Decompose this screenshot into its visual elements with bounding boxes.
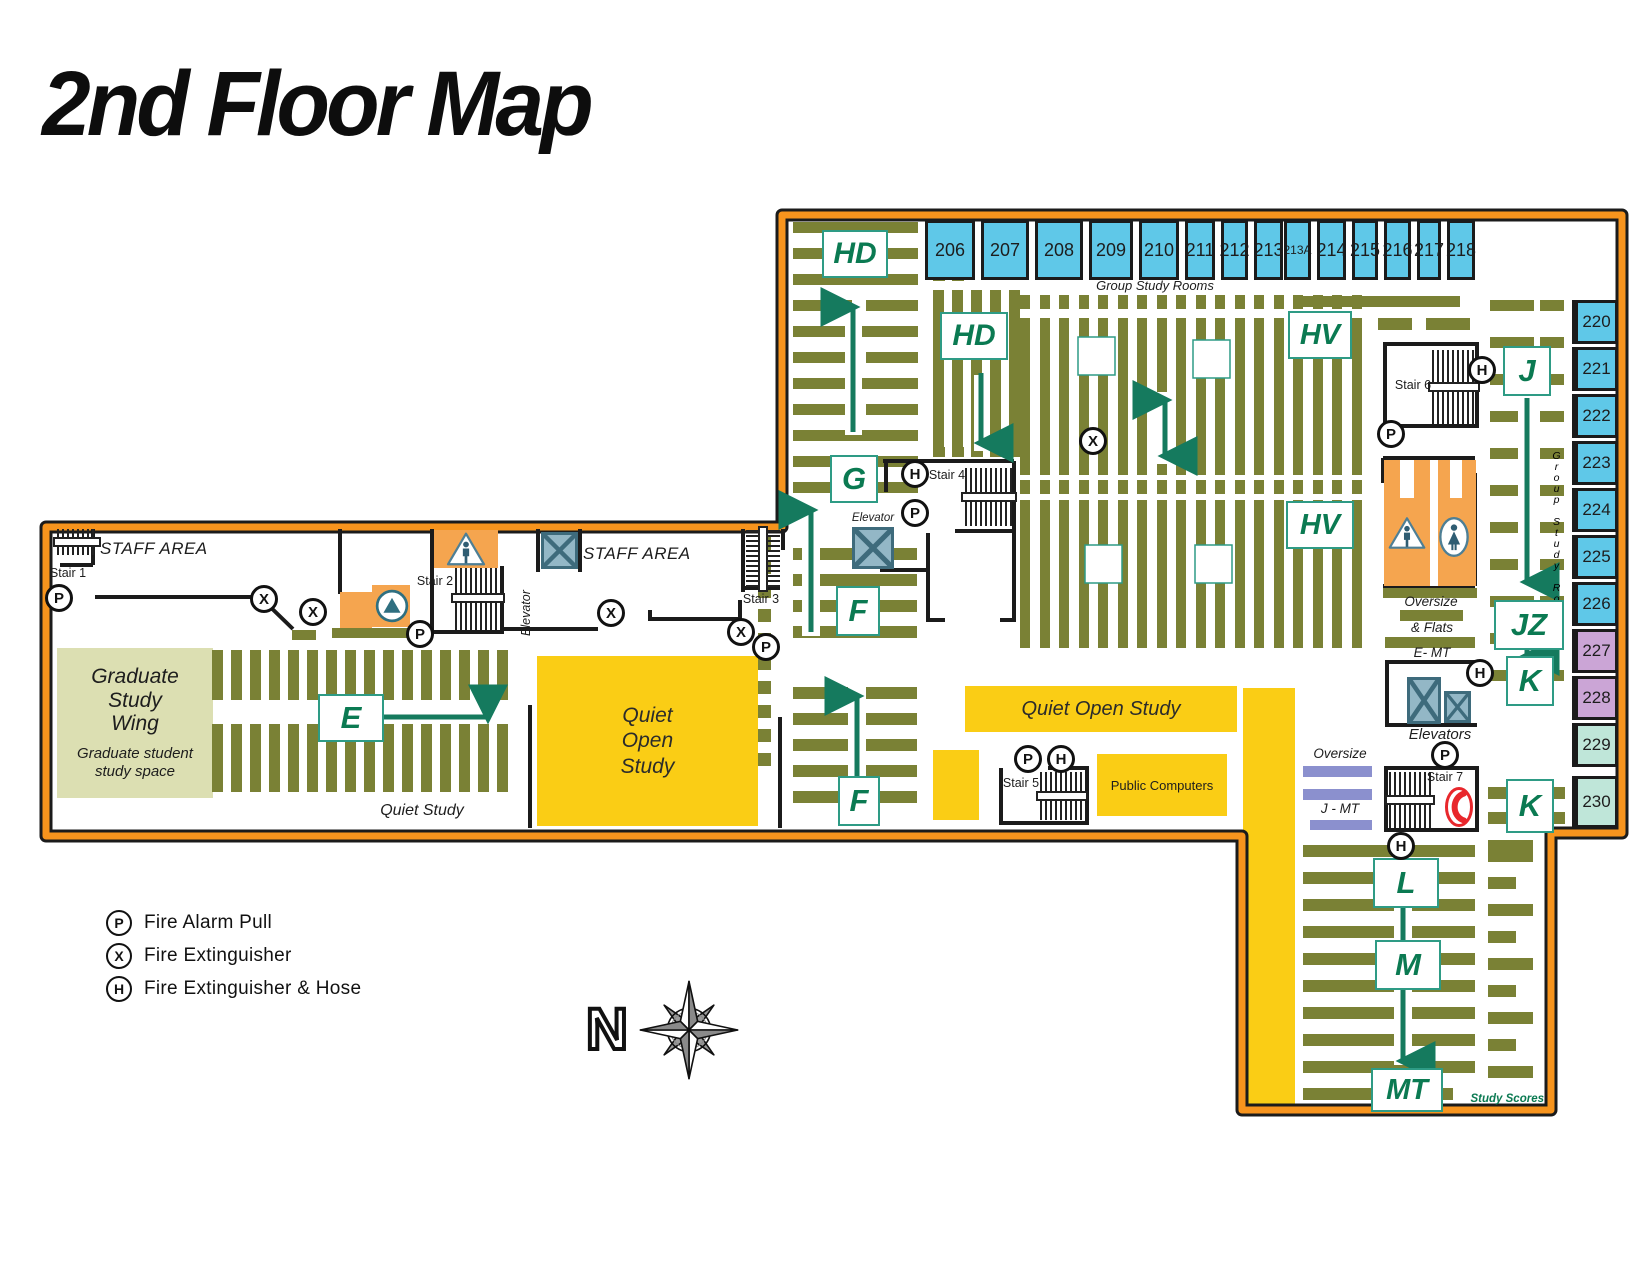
mens-restroom-icon (1388, 515, 1426, 551)
oversize-1-label: Oversize (1388, 594, 1474, 609)
book-stacks (212, 222, 1565, 1100)
legend-item-fire-hose: H Fire Extinguisher & Hose (106, 976, 361, 1002)
fire-extinguisher-hose-icon: H (901, 460, 929, 488)
elevator-icon-right-2 (1444, 691, 1471, 723)
group-study-room-228: 228 (1572, 676, 1618, 720)
legend-label: Fire Extinguisher & Hose (144, 978, 361, 1000)
fire-alarm-pull-icon: P (406, 620, 434, 648)
womens-restroom-icon (1438, 516, 1470, 558)
fire-alarm-pull-icon: P (1377, 420, 1405, 448)
fire-alarm-pull-icon: P (752, 633, 780, 661)
refuge-area-box (340, 592, 372, 628)
call-label-k-2: K (1506, 779, 1554, 833)
elevator-icon-wing (541, 532, 578, 569)
phone-icon (1444, 786, 1474, 828)
assistance-person-icon (446, 531, 486, 567)
fire-extinguisher-hose-icon: H (1468, 356, 1496, 384)
group-study-room-213: 213 (1254, 220, 1283, 280)
legend-item-fire-alarm: P Fire Alarm Pull (106, 910, 361, 936)
group-study-room-229: 229 (1572, 723, 1618, 767)
staff-area-1-label: STAFF AREA (100, 539, 208, 559)
group-study-room-221: 221 (1572, 347, 1618, 391)
fire-extinguisher-hose-icon: H (106, 976, 132, 1002)
call-label-hd-2: HD (940, 312, 1008, 360)
fire-extinguisher-hose-icon: H (1466, 659, 1494, 687)
call-label-hv-1: HV (1288, 311, 1352, 359)
oversize-2-label: Oversize (1300, 746, 1380, 761)
restroom-entry-left (1400, 460, 1414, 498)
compass-rose-icon (634, 976, 744, 1084)
elevator-icon-upper (852, 527, 894, 569)
fire-alarm-pull-icon: P (1014, 745, 1042, 773)
e-mt-range-label: E- MT (1392, 645, 1472, 660)
stair-7-label: Stair 7 (1426, 770, 1464, 784)
group-study-rooms-caption-top: Group Study Rooms (1040, 278, 1270, 293)
fire-extinguisher-icon: X (299, 598, 327, 626)
group-study-room-211: 211 (1185, 220, 1215, 280)
group-study-room-217: 217 (1417, 220, 1441, 280)
flats-label: & Flats (1392, 620, 1472, 635)
group-study-room-223: 223 (1572, 441, 1618, 485)
group-study-room-210: 210 (1139, 220, 1179, 280)
group-study-room-225: 225 (1572, 535, 1618, 579)
stair-1-label: Stair 1 (40, 566, 96, 580)
call-label-l: L (1373, 858, 1439, 908)
elevator-wing-label: Elevator (519, 562, 533, 636)
stair-3-label: Stair 3 (742, 592, 780, 606)
group-study-room-218: 218 (1447, 220, 1475, 280)
j-mt-range-label: J - MT (1300, 801, 1380, 816)
stair-2-label: Stair 2 (408, 574, 462, 588)
quiet-study-label: Quiet Study (362, 802, 482, 820)
map-legend: P Fire Alarm Pull X Fire Extinguisher H … (106, 910, 361, 1009)
group-study-room-207: 207 (981, 220, 1029, 280)
fire-alarm-pull-icon: P (901, 499, 929, 527)
call-label-f-1: F (836, 586, 880, 636)
call-label-mt: MT (1371, 1068, 1443, 1112)
call-label-hd-1: HD (822, 230, 888, 278)
group-study-room-227: 227 (1572, 629, 1618, 673)
fire-alarm-pull-icon: P (106, 910, 132, 936)
study-scores-label: Study Scores (1448, 1093, 1544, 1105)
stair-5-label: Stair 5 (1002, 776, 1040, 790)
stair-6-label: Stair 6 (1394, 378, 1432, 392)
group-study-room-222: 222 (1572, 394, 1618, 438)
legend-label: Fire Alarm Pull (144, 912, 272, 934)
group-study-room-216: 216 (1384, 220, 1411, 280)
group-study-room-226: 226 (1572, 582, 1618, 626)
group-study-room-230: 230 (1572, 776, 1618, 828)
group-study-room-213A: 213A (1284, 220, 1311, 280)
call-label-g: G (830, 455, 878, 503)
restroom-entry-right (1450, 460, 1462, 498)
fire-extinguisher-hose-icon: H (1047, 745, 1075, 773)
legend-label: Fire Extinguisher (144, 945, 292, 967)
call-label-f-2: F (838, 776, 880, 826)
group-study-room-206: 206 (925, 220, 975, 280)
fire-extinguisher-icon: X (727, 618, 755, 646)
group-study-room-214: 214 (1317, 220, 1346, 280)
call-label-hv-2: HV (1286, 501, 1354, 549)
up-direction-icon (374, 588, 410, 624)
staff-area-2-label: STAFF AREA (583, 544, 691, 564)
group-study-room-208: 208 (1035, 220, 1083, 280)
restroom-divider-gap (1430, 460, 1438, 586)
elevator-upper-label: Elevator (840, 512, 906, 524)
call-label-m: M (1375, 940, 1441, 990)
group-study-room-224: 224 (1572, 488, 1618, 532)
call-label-jz: JZ (1494, 600, 1564, 650)
fire-alarm-pull-icon: P (45, 584, 73, 612)
fire-extinguisher-hose-icon: H (1387, 832, 1415, 860)
call-label-e: E (318, 694, 384, 742)
legend-item-fire-extinguisher: X Fire Extinguisher (106, 943, 361, 969)
call-label-j: J (1503, 346, 1551, 396)
stair-4-label: Stair 4 (928, 468, 966, 482)
fire-extinguisher-icon: X (597, 599, 625, 627)
group-study-room-220: 220 (1572, 300, 1618, 344)
fire-alarm-pull-icon: P (1431, 741, 1459, 769)
north-label: N (586, 996, 628, 1063)
floor-map-page: 2nd Floor Map Graduate Study Wing Gradu (0, 0, 1650, 1275)
fire-extinguisher-icon: X (1079, 427, 1107, 455)
group-study-room-212: 212 (1221, 220, 1248, 280)
fire-extinguisher-icon: X (106, 943, 132, 969)
elevator-icon-right-1 (1407, 677, 1441, 724)
group-study-room-209: 209 (1089, 220, 1133, 280)
fire-extinguisher-icon: X (250, 585, 278, 613)
call-label-k-1: K (1506, 656, 1554, 706)
group-study-room-215: 215 (1352, 220, 1378, 280)
elevators-label: Elevators (1398, 726, 1482, 743)
